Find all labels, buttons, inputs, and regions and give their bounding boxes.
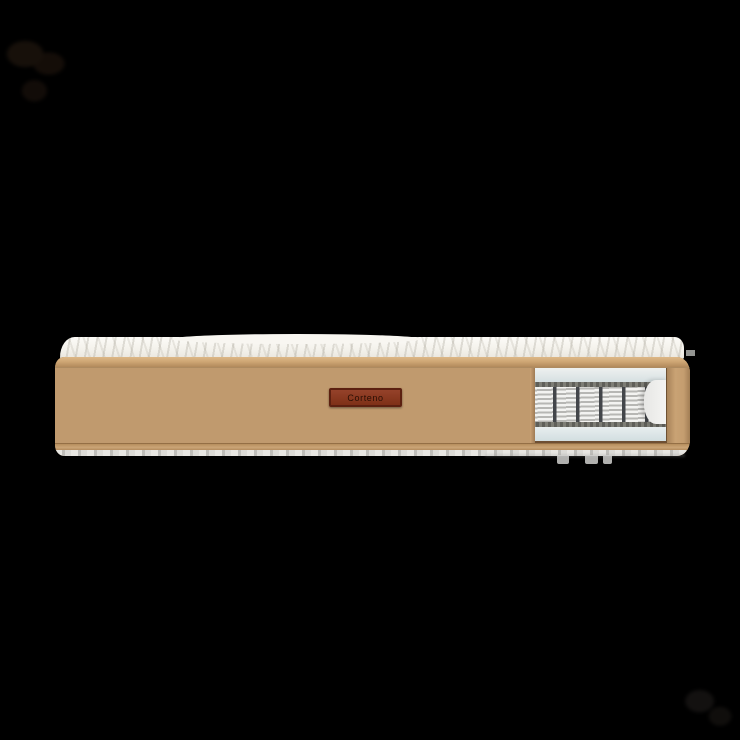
comfort-foam-layer-top bbox=[530, 367, 668, 382]
spring-foot bbox=[557, 455, 569, 464]
spring-cutaway-section bbox=[530, 367, 668, 443]
mattress-side-band: Corteno bbox=[55, 357, 690, 456]
quilt-edge-tab bbox=[686, 350, 695, 356]
right-corner-fabric bbox=[666, 357, 690, 456]
fabric-cut-fold bbox=[530, 367, 535, 443]
photo-stage: Corteno bbox=[0, 0, 740, 740]
base-foam-layer bbox=[530, 427, 668, 441]
mattress-product: Corteno bbox=[55, 337, 690, 464]
spring-foot bbox=[603, 455, 612, 464]
watermark-blob-top-left bbox=[4, 30, 70, 110]
corner-foam-block bbox=[644, 380, 668, 424]
spring-foot bbox=[585, 455, 598, 464]
top-piping bbox=[55, 357, 690, 368]
brand-label: Corteno bbox=[329, 388, 402, 407]
watermark-blob-bottom-right bbox=[674, 678, 738, 736]
mattress-top-quilt bbox=[60, 337, 684, 359]
